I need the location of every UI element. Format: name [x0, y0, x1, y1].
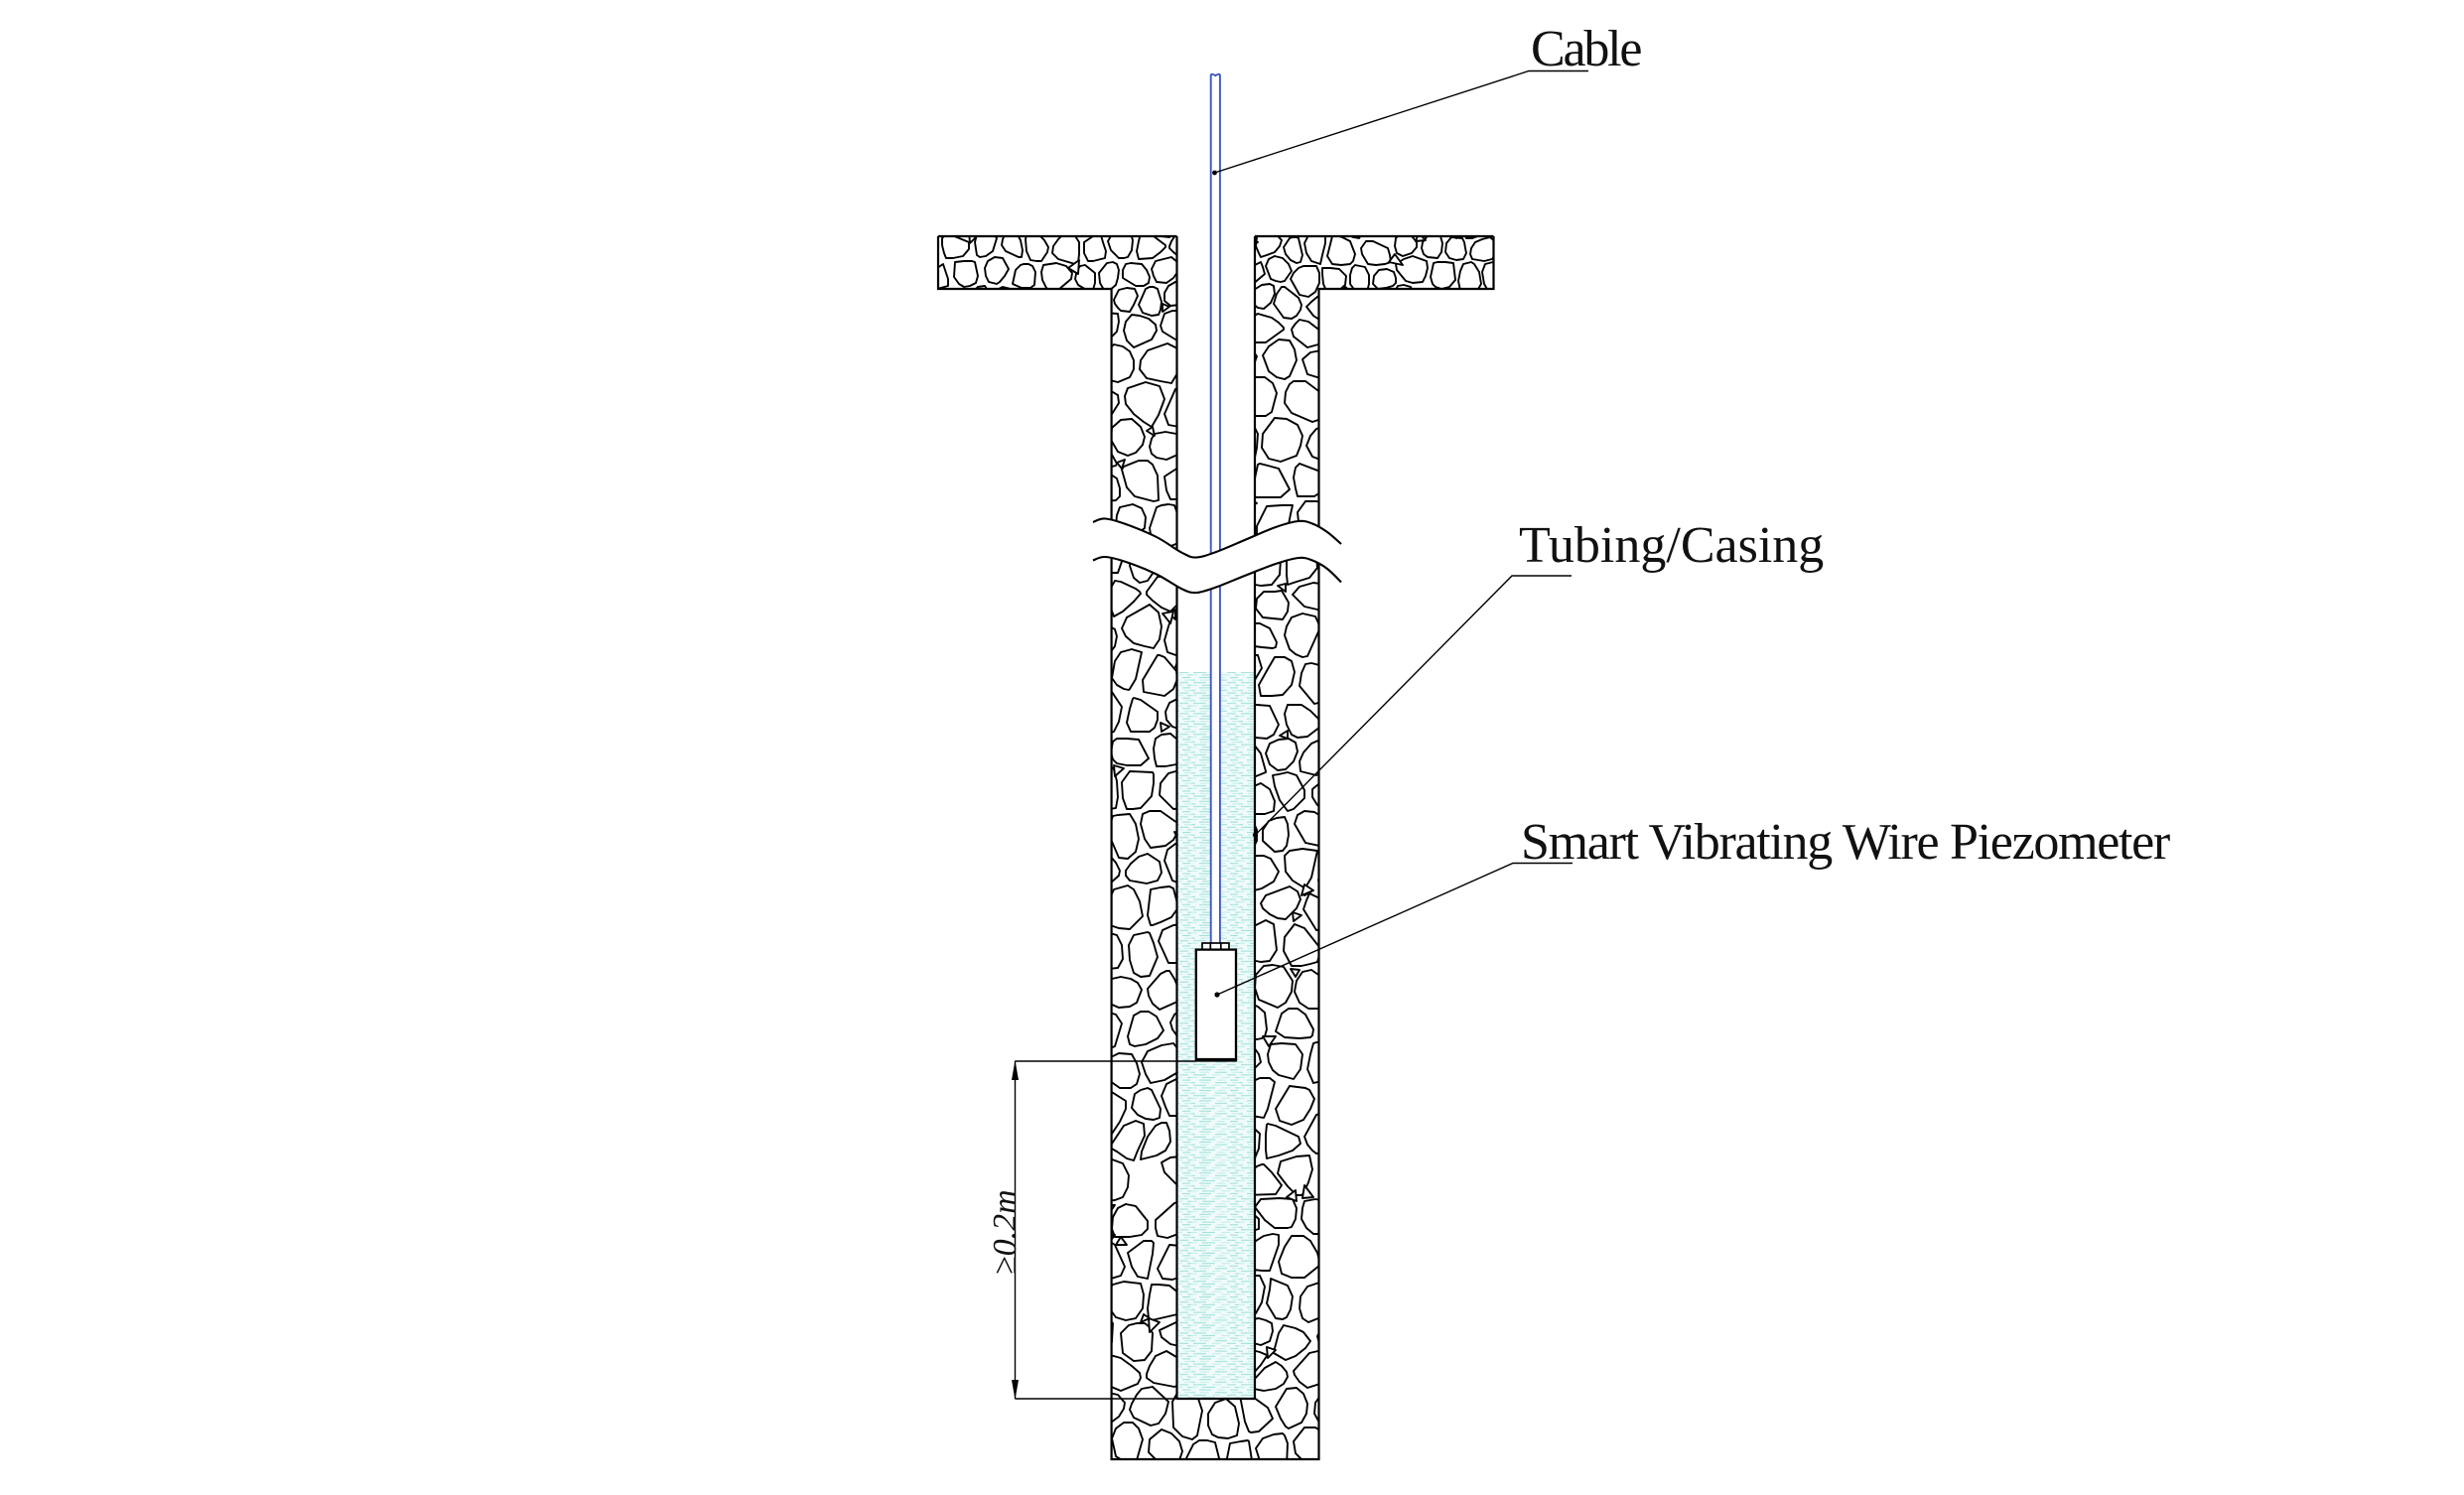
- svg-text:Smart Vibrating Wire Piezomete: Smart Vibrating Wire Piezometer: [1521, 814, 2170, 871]
- svg-text:≥0.2m: ≥0.2m: [987, 1189, 1024, 1275]
- svg-text:Tubing/Casing: Tubing/Casing: [1519, 517, 1824, 574]
- svg-text:Cable: Cable: [1531, 21, 1641, 77]
